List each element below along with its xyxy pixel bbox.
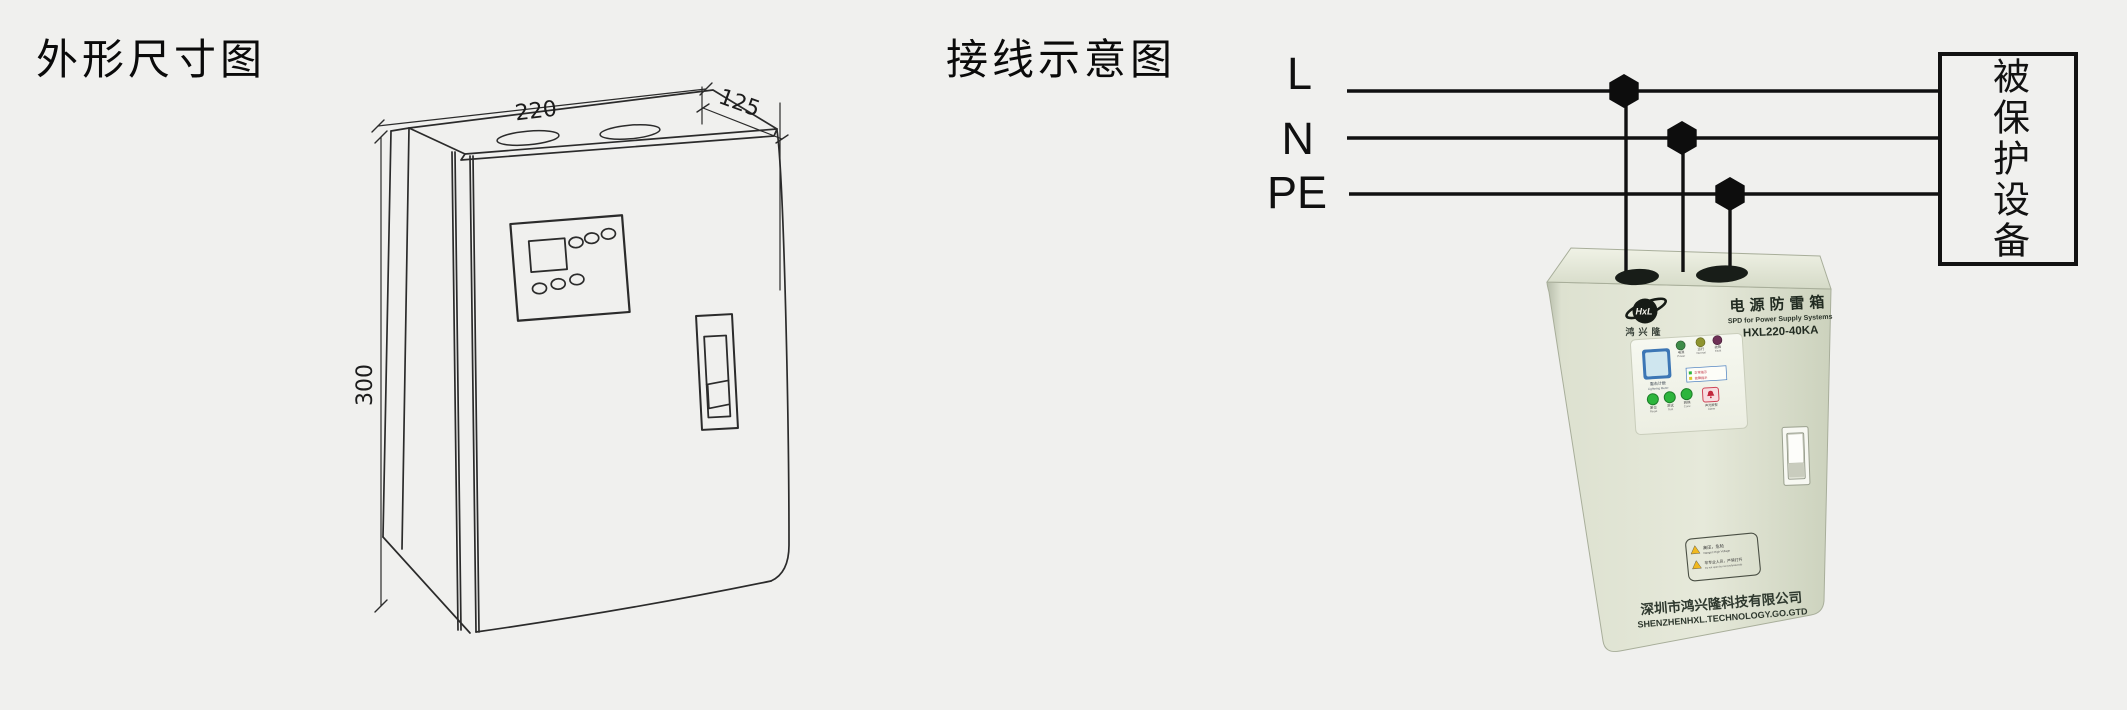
button-convert [1681, 388, 1693, 400]
button-reset [1647, 393, 1659, 405]
legend-row-normal: 正常指示 [1694, 369, 1707, 375]
led-fault [1713, 335, 1723, 345]
button-convert-label-en: Conv. [1684, 404, 1692, 408]
legend-box: 正常指示 故障指示 [1686, 366, 1727, 382]
page-canvas: 外形尺寸图 接线示意图 [0, 0, 2127, 710]
brand-name: 鸿兴隆 [1625, 326, 1664, 337]
lcd-screen [1645, 351, 1668, 376]
junction-pe [1715, 177, 1744, 211]
switch-rocker [1788, 434, 1804, 464]
dim-width-label: 220 [514, 97, 559, 127]
wiring-schematic: L N PE [1267, 48, 1938, 218]
spd-device: HxL 鸿兴隆 电源防雷箱 SPD for Power Supply Syste… [1547, 91, 1833, 652]
wire-label-l: L [1287, 48, 1312, 99]
cabinet-control-panel [510, 215, 629, 320]
switch-rocker-shadow [1789, 463, 1804, 478]
cabinet-switch [696, 314, 738, 430]
legend-row-fault: 故障指示 [1694, 375, 1707, 381]
button-test [1664, 391, 1676, 403]
led-power [1676, 341, 1686, 351]
logo-text: HxL [1635, 307, 1652, 317]
led-fault-label-en: Fault [1715, 348, 1722, 352]
dim-height-label: 300 [353, 364, 378, 406]
button-test-label-en: Test [1668, 407, 1674, 411]
device-switch [1782, 427, 1810, 486]
cabinet-top-hole-left [497, 129, 560, 148]
wire-label-n: N [1282, 113, 1315, 164]
wire-lines [1347, 91, 1938, 194]
device-top-face [1547, 248, 1831, 289]
wire-junctions [1609, 74, 1744, 211]
wire-drops [1626, 91, 1730, 276]
alarm-label-en: Alarm [1708, 406, 1716, 410]
led-normal-label-en: Normal [1696, 350, 1706, 355]
protected-device-label: 被保护设备 [1990, 57, 2027, 262]
diagram-artwork: 220 125 300 L N PE [0, 0, 2127, 710]
led-power-label-en: Power [1677, 354, 1685, 358]
wire-label-pe: PE [1267, 167, 1327, 218]
device-panel: 雷击计数 Lightning Meter 电源 Power 运行 Normal … [1630, 333, 1748, 435]
junction-n [1667, 121, 1696, 155]
protected-device-box: 被保护设备 [1938, 52, 2078, 266]
junction-l [1609, 74, 1638, 108]
cabinet-line-drawing [372, 83, 789, 633]
button-reset-label-en: Reset [1650, 409, 1658, 413]
led-normal [1696, 337, 1706, 347]
dim-depth-label: 125 [715, 85, 763, 123]
